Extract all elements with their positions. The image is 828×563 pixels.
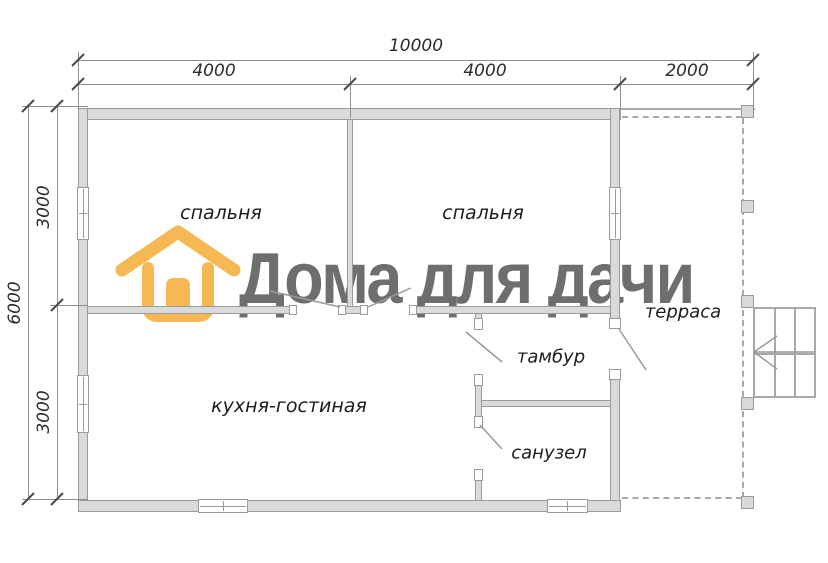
dim-label-segment: 2000 bbox=[665, 61, 708, 81]
floor-plan: Дома для дачи bbox=[0, 0, 828, 563]
dim-label-segment: 4000 bbox=[463, 61, 506, 81]
stairs-direction-arrow bbox=[754, 336, 814, 369]
dim-label-total-width: 10000 bbox=[389, 36, 443, 56]
room-label-bathroom: санузел bbox=[511, 443, 587, 464]
dim-label-segment: 4000 bbox=[192, 61, 235, 81]
door-leaf-terrace-entry bbox=[619, 329, 646, 370]
room-label-bedroom-2: спальня bbox=[442, 202, 524, 224]
room-label-kitchen-living: кухня-гостиная bbox=[211, 395, 367, 417]
dim-label-total-height: 6000 bbox=[5, 281, 25, 324]
door-leaf-bedroom-2 bbox=[368, 288, 411, 307]
plan-line-overlay bbox=[0, 0, 828, 563]
door-leaf-bedroom-1 bbox=[270, 291, 340, 307]
room-label-vestibule: тамбур bbox=[517, 347, 585, 368]
dim-label-segment: 3000 bbox=[34, 185, 54, 228]
room-label-terrace: терраса bbox=[645, 302, 721, 323]
room-label-bedroom-1: спальня bbox=[180, 202, 262, 224]
leader-bathroom bbox=[480, 425, 502, 449]
leader-vestibule bbox=[466, 332, 502, 362]
dim-label-segment: 3000 bbox=[34, 390, 54, 433]
